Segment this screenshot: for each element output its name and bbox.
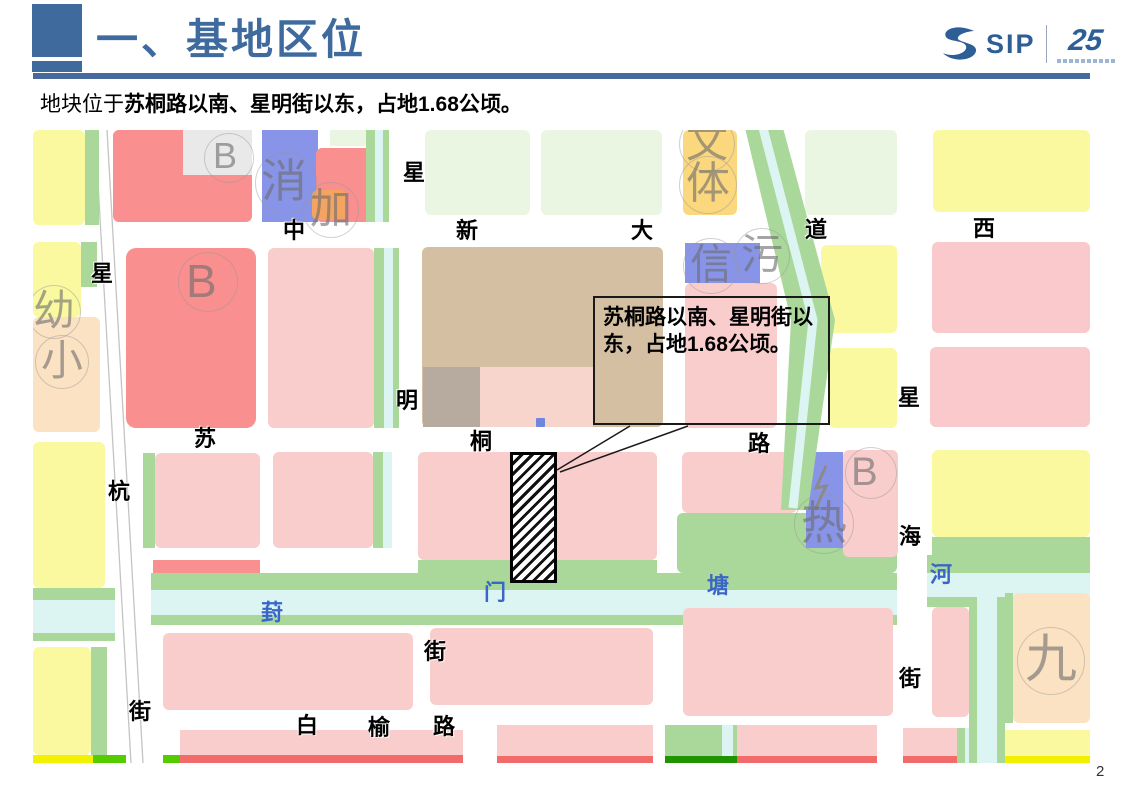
street-label: 星: [898, 387, 920, 409]
site-marker: [510, 452, 557, 583]
street-label: 街: [424, 641, 446, 663]
parcel: [383, 452, 392, 548]
parcel: [375, 130, 383, 222]
sip-logo-text: SIP: [986, 29, 1036, 60]
river-label: 门: [484, 582, 506, 604]
sip-swoosh-icon: [938, 24, 980, 64]
parcel: [821, 245, 897, 333]
parcel: [430, 628, 653, 705]
river-label: 塘: [707, 575, 729, 597]
street-label: 白: [296, 715, 318, 737]
parcel: [682, 452, 797, 513]
facility-watermark: 九: [1025, 634, 1077, 686]
parcel: [33, 647, 91, 755]
street-label: 苏: [194, 428, 216, 450]
street-label: 海: [899, 526, 921, 548]
parcel: [497, 725, 653, 760]
parcel: [737, 756, 877, 763]
facility-watermark: 热: [801, 500, 847, 546]
page-number: 2: [1096, 763, 1104, 780]
parcel: [425, 130, 530, 215]
anniversary-number: 25: [1067, 26, 1105, 56]
street-label: 星: [403, 162, 425, 184]
parcel: [903, 756, 957, 763]
parcel: [373, 452, 383, 548]
facility-watermark: 污: [741, 234, 783, 276]
parcel: [163, 633, 413, 710]
parcel: [933, 130, 1090, 212]
facility-watermark: 信: [690, 244, 732, 286]
sip-logo: SIP 25: [938, 18, 1115, 70]
street-label: 榆: [368, 717, 390, 739]
street-label: 星: [91, 263, 113, 285]
anniversary-mark: 25: [1057, 26, 1115, 63]
land-use-map: 苏桐路以南、星明街以东，占地1.68公顷。 星杭街中新大道西星明街苏桐路星海街白…: [33, 130, 1090, 763]
parcel: [722, 725, 733, 756]
parcel: [180, 730, 463, 755]
parcel: [1005, 593, 1013, 723]
street-label: 西: [973, 218, 995, 240]
parcel: [33, 633, 115, 641]
facility-watermark: B: [213, 138, 237, 174]
river-label: 葑: [261, 602, 283, 624]
parcel: [977, 597, 997, 763]
parcel: [268, 248, 374, 428]
street-label: 路: [433, 716, 455, 738]
parcel: [932, 537, 1090, 555]
parcel: [91, 647, 107, 755]
title-accent-bar: [32, 61, 82, 72]
parcel: [536, 418, 545, 427]
parcel: [180, 755, 463, 763]
parcel: [932, 242, 1090, 333]
parcel: [155, 453, 260, 548]
parcel: [805, 130, 897, 215]
parcel: [374, 248, 384, 428]
header-divider: [33, 73, 1090, 79]
subtitle-emphasis: 苏桐路以南、星明街以东，占地1.68公顷。: [124, 93, 522, 116]
parcel: [683, 608, 893, 716]
street-label: 道: [805, 219, 827, 241]
parcel: [273, 452, 373, 548]
parcel: [932, 607, 969, 717]
parcel: [497, 756, 653, 763]
parcel: [330, 130, 366, 146]
parcel: [932, 450, 1090, 537]
subtitle-prefix: 地块位于: [40, 93, 124, 116]
parcel: [163, 755, 181, 763]
parcel: [33, 588, 115, 600]
street-label: 路: [748, 433, 770, 455]
street-label: 杭: [108, 481, 130, 503]
callout-box: 苏桐路以南、星明街以东，占地1.68公顷。: [593, 296, 830, 425]
parcel: [33, 130, 85, 225]
parcel: [957, 728, 965, 763]
facility-watermark: 体: [686, 162, 730, 206]
subtitle: 地块位于苏桐路以南、星明街以东，占地1.68公顷。: [40, 88, 522, 118]
parcel: [737, 725, 877, 756]
parcel: [33, 442, 105, 588]
street-label: 明: [396, 390, 418, 412]
street-label: 新: [456, 220, 478, 242]
title-accent-square: [32, 4, 82, 57]
facility-watermark: 幼: [33, 290, 75, 332]
street-label: 街: [129, 701, 151, 723]
parcel: [33, 755, 93, 763]
facility-watermark: 消: [261, 158, 307, 204]
street-label: 街: [899, 668, 921, 690]
street-label: 大: [631, 220, 653, 242]
facility-watermark: B: [851, 452, 878, 492]
facility-watermark: 加: [310, 188, 352, 230]
parcel: [93, 755, 126, 763]
anniversary-caption: [1057, 59, 1115, 63]
parcel: [969, 597, 977, 763]
logo-separator: [1046, 25, 1047, 63]
parcel: [366, 130, 375, 222]
parcel: [85, 130, 99, 225]
street-label: 中: [283, 220, 305, 242]
parcel: [384, 248, 393, 428]
parcel: [143, 453, 155, 548]
parcel: [903, 728, 957, 756]
facility-watermark: B: [186, 258, 217, 304]
street-label: 桐: [470, 431, 492, 453]
parcel: [541, 130, 662, 215]
river-label: 河: [930, 564, 952, 586]
parcel: [423, 367, 480, 427]
parcel: [383, 130, 389, 222]
parcel: [33, 600, 115, 633]
parcel: [997, 597, 1005, 763]
facility-watermark: 小: [41, 340, 83, 382]
parcel: [930, 347, 1090, 427]
slide: 一、基地区位 SIP 25 地块位于苏桐路以南、星明街以东，占地1.68公顷。 …: [0, 0, 1123, 794]
page-title: 一、基地区位: [96, 6, 366, 67]
parcel: [829, 348, 897, 428]
